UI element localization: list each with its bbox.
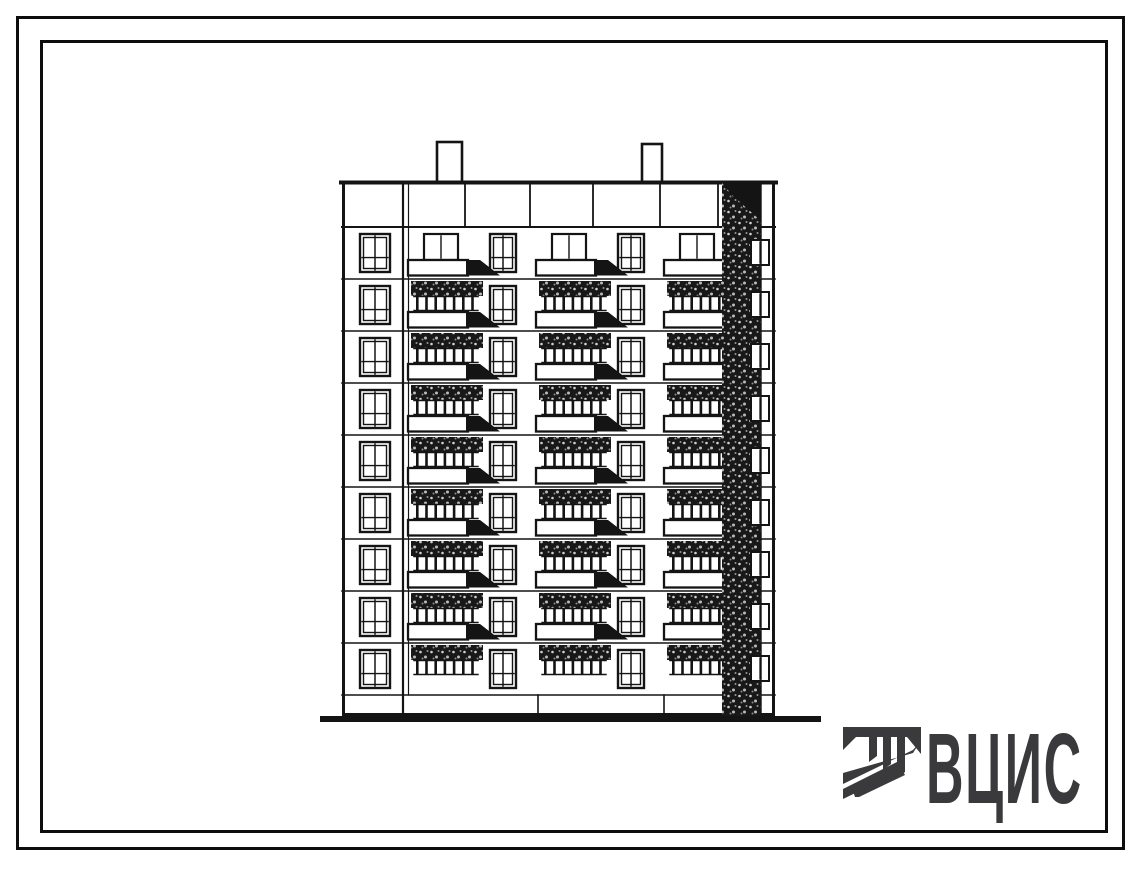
stair-windows [360,234,390,688]
elevation-svg [0,0,1139,869]
chimneys [437,142,662,182]
building-elevation-drawing [0,0,1139,869]
